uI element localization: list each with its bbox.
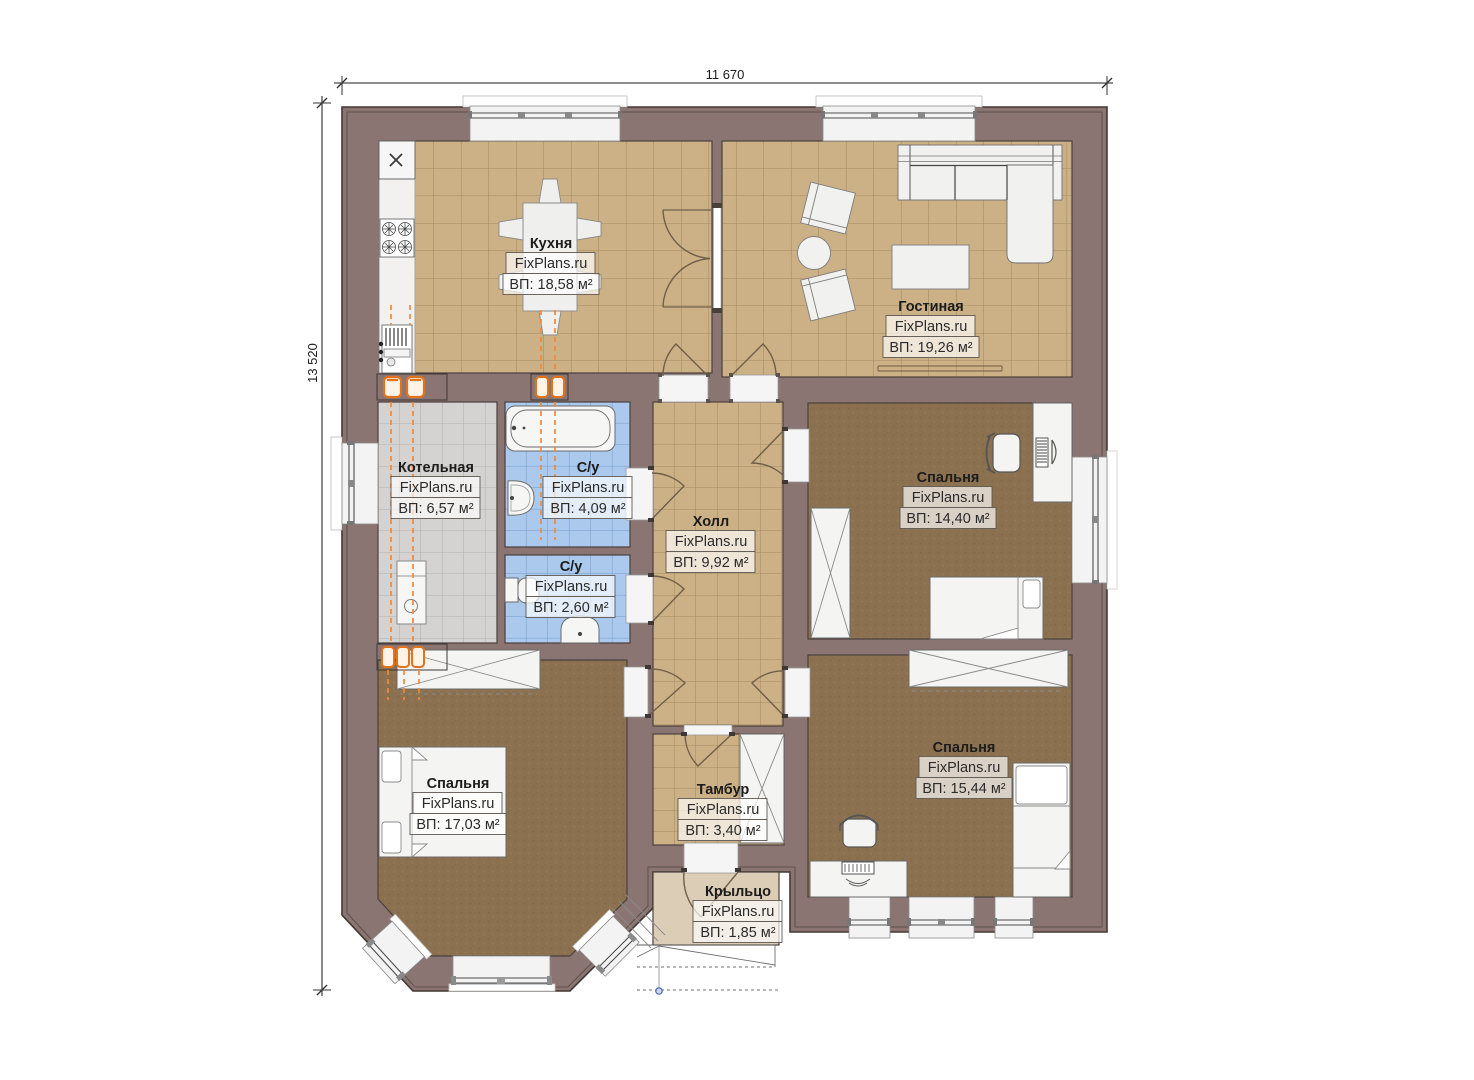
svg-text:11 670: 11 670	[706, 67, 745, 82]
svg-text:ВП: 9,92 м²: ВП: 9,92 м²	[673, 555, 748, 571]
svg-text:FixPlans.ru: FixPlans.ru	[928, 760, 1001, 776]
svg-text:Спальня: Спальня	[917, 470, 980, 486]
svg-text:Гостиная: Гостиная	[898, 299, 964, 315]
svg-text:Спальня: Спальня	[933, 740, 996, 756]
svg-text:FixPlans.ru: FixPlans.ru	[400, 480, 473, 496]
svg-text:13 520: 13 520	[305, 343, 320, 383]
svg-text:FixPlans.ru: FixPlans.ru	[675, 534, 748, 550]
svg-text:Спальня: Спальня	[427, 776, 490, 792]
svg-text:ВП: 2,60 м²: ВП: 2,60 м²	[533, 600, 608, 616]
svg-text:ВП: 19,26 м²: ВП: 19,26 м²	[889, 340, 972, 356]
svg-text:Кухня: Кухня	[530, 236, 572, 252]
svg-text:ВП: 14,40 м²: ВП: 14,40 м²	[906, 511, 989, 527]
svg-text:FixPlans.ru: FixPlans.ru	[702, 904, 775, 920]
svg-text:Котельная: Котельная	[398, 460, 474, 476]
svg-text:Холл: Холл	[693, 514, 729, 530]
svg-text:ВП: 18,58 м²: ВП: 18,58 м²	[509, 277, 592, 293]
svg-text:FixPlans.ru: FixPlans.ru	[515, 256, 588, 272]
svg-text:С/у: С/у	[560, 559, 583, 575]
svg-text:ВП: 3,40 м²: ВП: 3,40 м²	[685, 823, 760, 839]
svg-text:Тамбур: Тамбур	[697, 782, 750, 798]
svg-text:FixPlans.ru: FixPlans.ru	[895, 319, 968, 335]
svg-text:FixPlans.ru: FixPlans.ru	[912, 490, 985, 506]
svg-text:ВП: 17,03 м²: ВП: 17,03 м²	[416, 817, 499, 833]
svg-text:Крыльцо: Крыльцо	[705, 884, 771, 900]
svg-text:FixPlans.ru: FixPlans.ru	[552, 480, 625, 496]
svg-text:ВП: 15,44 м²: ВП: 15,44 м²	[922, 781, 1005, 797]
svg-text:FixPlans.ru: FixPlans.ru	[687, 802, 760, 818]
svg-text:ВП: 6,57 м²: ВП: 6,57 м²	[398, 501, 473, 517]
svg-text:ВП: 1,85 м²: ВП: 1,85 м²	[700, 925, 775, 941]
svg-text:FixPlans.ru: FixPlans.ru	[422, 796, 495, 812]
svg-text:С/у: С/у	[577, 460, 600, 476]
svg-text:FixPlans.ru: FixPlans.ru	[535, 579, 608, 595]
svg-text:ВП: 4,09 м²: ВП: 4,09 м²	[550, 501, 625, 517]
